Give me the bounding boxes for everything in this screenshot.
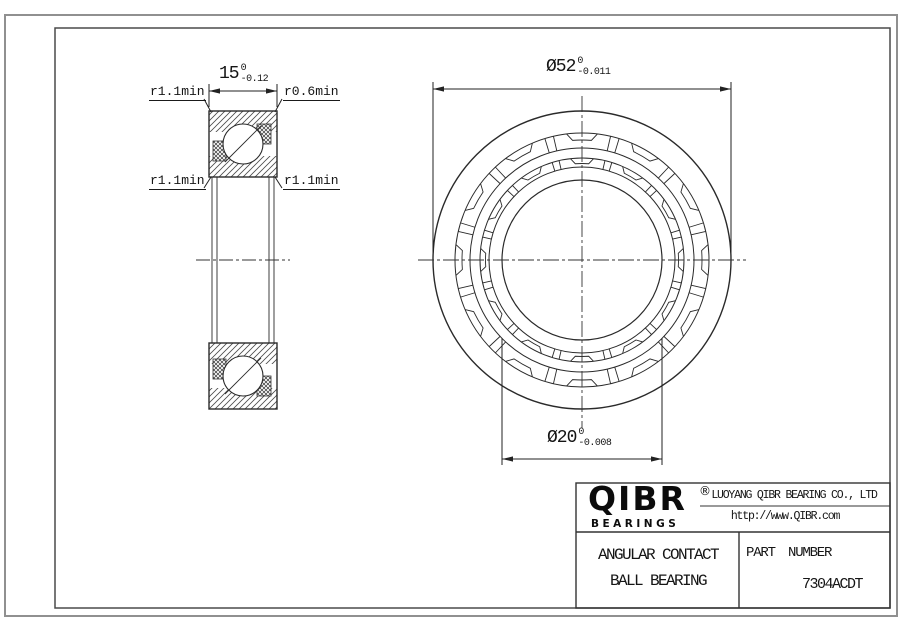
part-number-label: PART NUMBER (746, 545, 831, 561)
radius-label-mid-left: r1.1min (149, 173, 206, 190)
dim-od-tol-upper: 0 (577, 56, 610, 67)
dim-od-value: Ø52 (546, 57, 575, 77)
dim-bore-diameter: Ø20 0 -0.008 (547, 427, 611, 449)
bearing-drawing-page: 15 0 -0.12 Ø52 0 -0.011 Ø20 0 -0.008 r1.… (0, 0, 900, 636)
dim-od-tol-lower: -0.011 (577, 67, 610, 78)
dim-width-tol-lower: -0.12 (241, 74, 269, 85)
qibr-logo-subtext: BEARINGS (591, 518, 679, 530)
front-view (418, 96, 746, 428)
drawing-canvas (0, 0, 900, 636)
dim-width-value: 15 (219, 64, 239, 84)
qibr-logo: QIBR (588, 482, 687, 515)
radius-label-top-right: r0.6min (283, 84, 340, 101)
product-name-line1: ANGULAR CONTACT (598, 546, 718, 564)
radius-label-top-left: r1.1min (149, 84, 206, 101)
part-number-value: 7304ACDT (802, 576, 862, 593)
company-url: http://www.QIBR.com (731, 510, 839, 523)
company-name: LUOYANG QIBR BEARING CO., LTD (711, 489, 876, 502)
dim-width-tol-upper: 0 (241, 63, 269, 74)
section-view (196, 111, 290, 409)
dim-width: 15 0 -0.12 (219, 63, 268, 85)
product-name-line2: BALL BEARING (610, 572, 706, 590)
dim-bore-value: Ø20 (547, 428, 576, 448)
dim-width-lines (209, 84, 277, 107)
radius-label-mid-right: r1.1min (283, 173, 340, 190)
dim-bore-tol-lower: -0.008 (578, 438, 611, 449)
dim-bore-tol-upper: 0 (578, 427, 611, 438)
outer-page-border (5, 15, 897, 616)
dim-outer-diameter: Ø52 0 -0.011 (546, 56, 610, 78)
registered-trademark-icon: ® (699, 484, 711, 498)
